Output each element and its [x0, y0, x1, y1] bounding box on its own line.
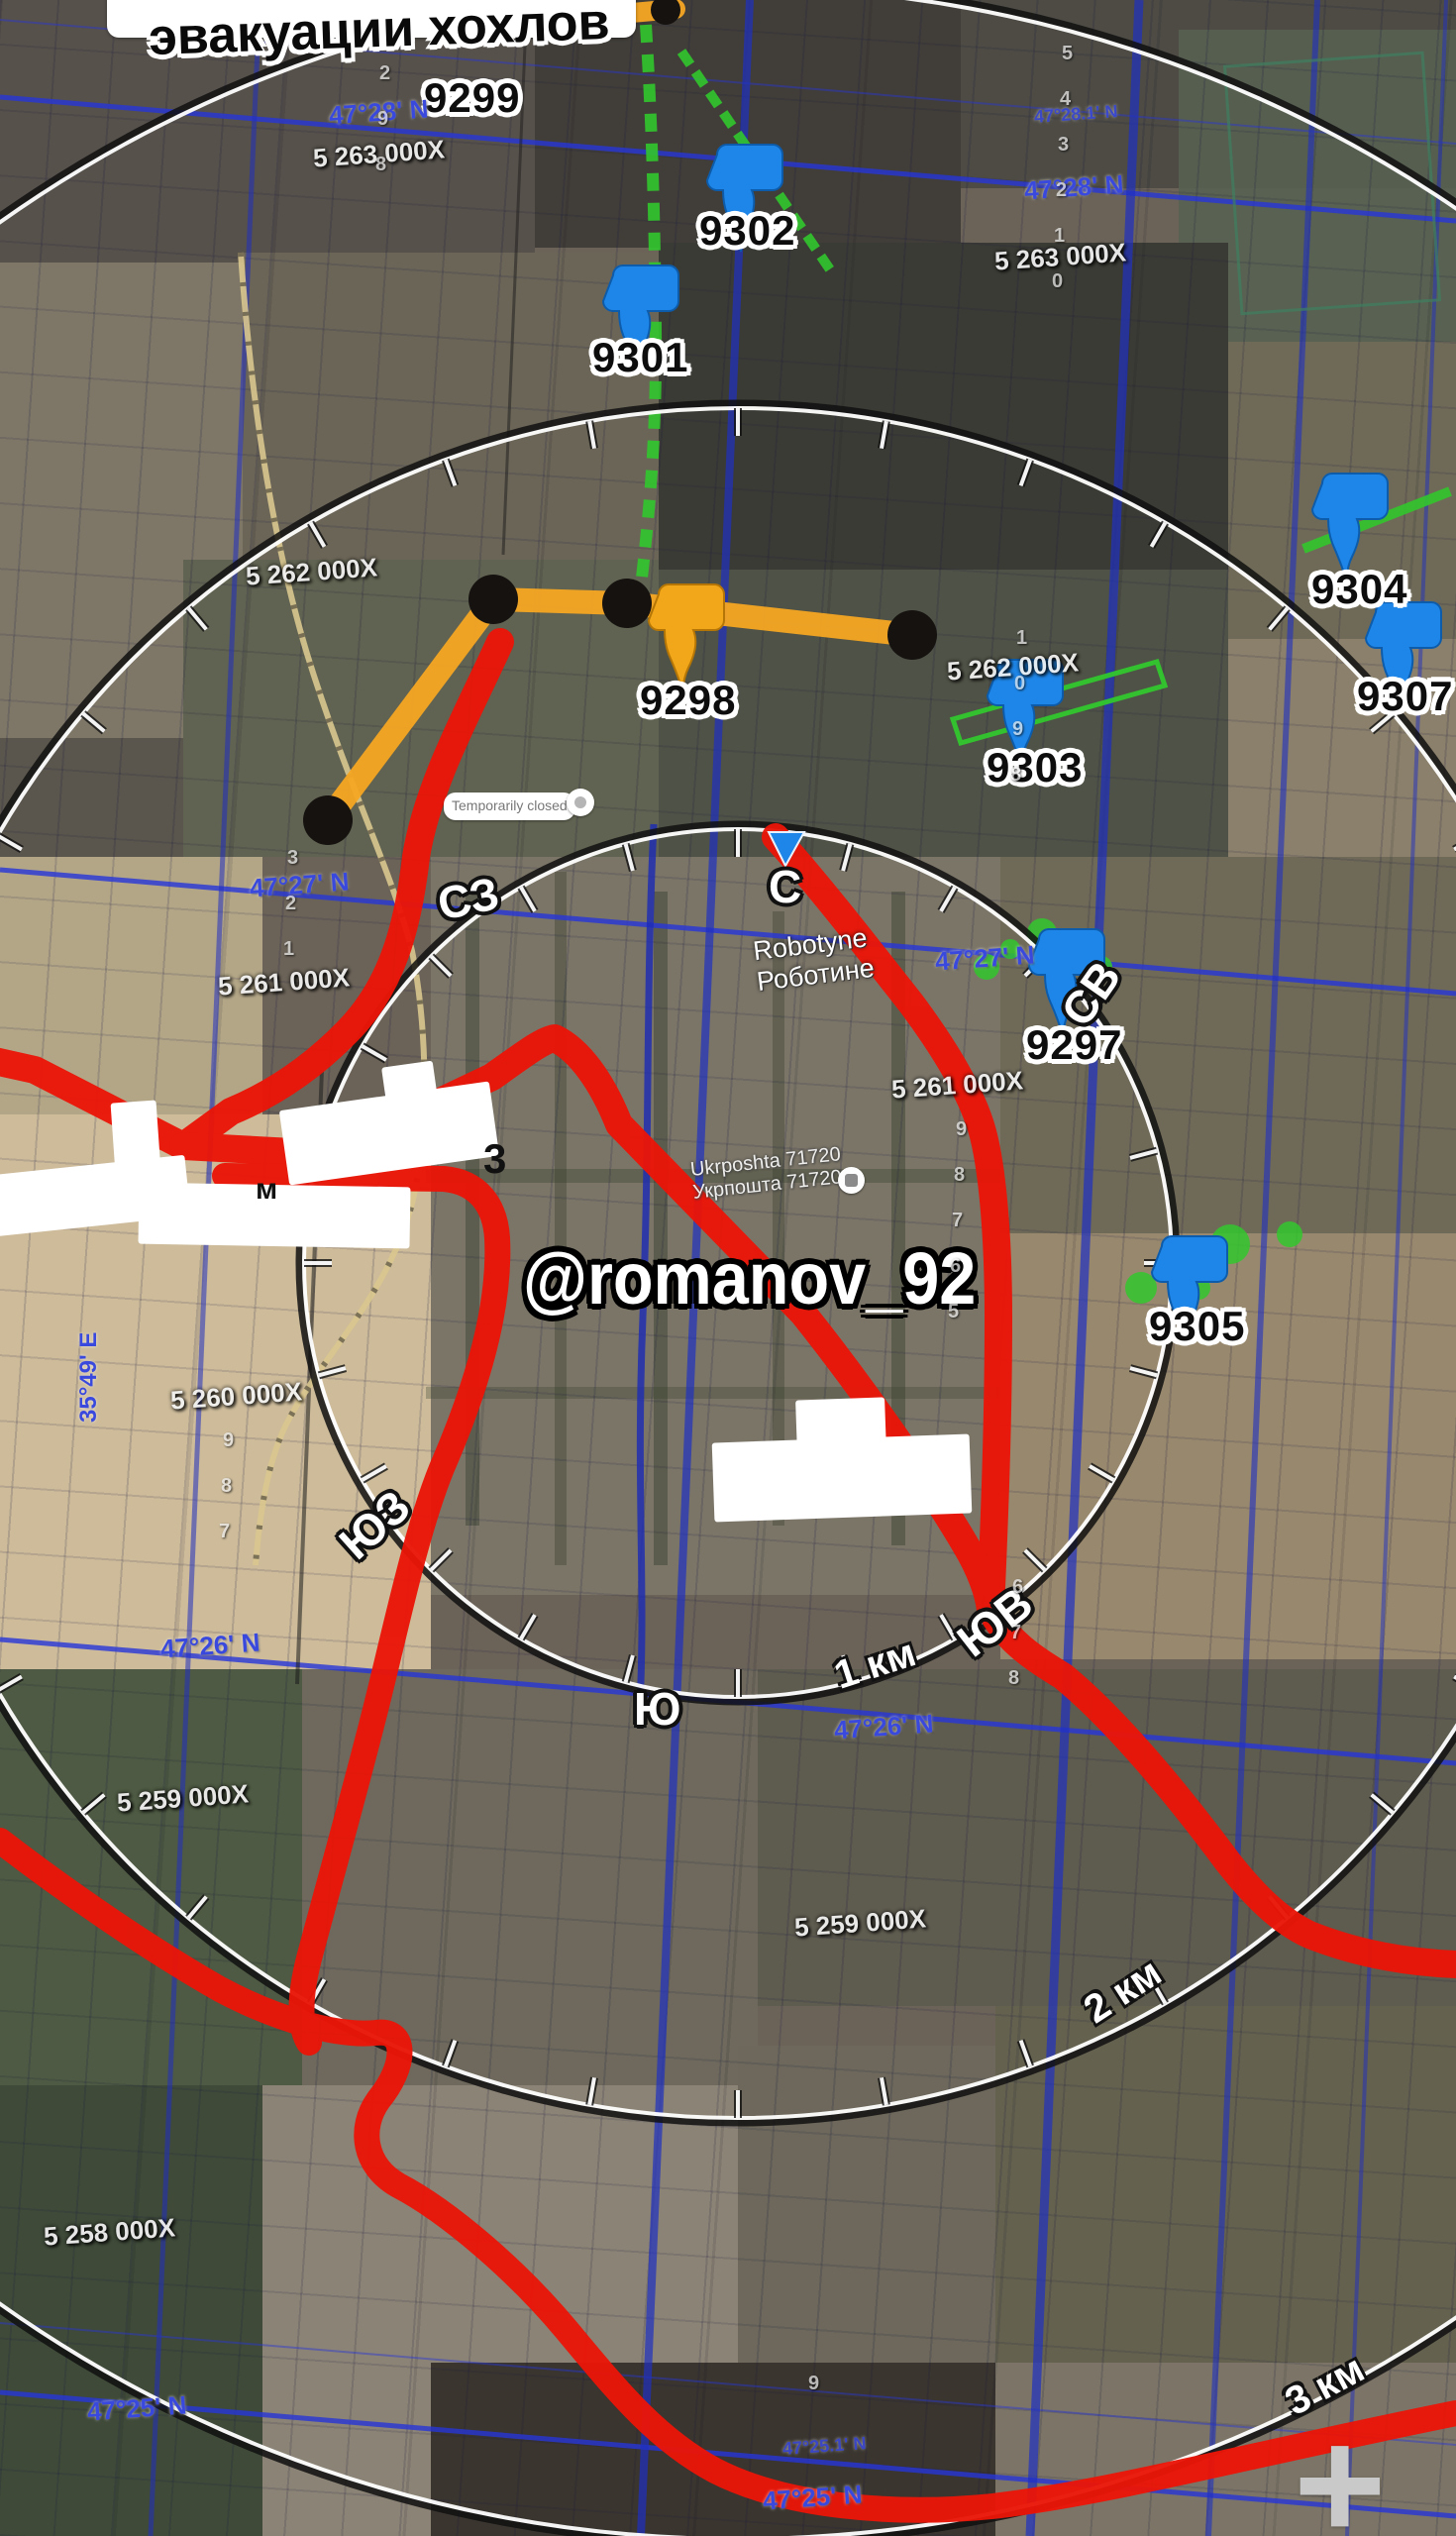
grid-tick-digit: 0 — [1052, 271, 1063, 291]
grid-tick-digit: 7 — [952, 1211, 963, 1230]
place-name: Robotyne Роботине — [752, 922, 877, 998]
grid-tick-digit: 8 — [221, 1476, 232, 1496]
grid-latitude-label: 47°28.1' N — [1033, 102, 1118, 126]
grid-latitude-label: 47°26' N — [159, 1630, 260, 1662]
grid-tick-digit: 1 — [1054, 226, 1065, 246]
grid-tick-digit: 2 — [379, 63, 390, 83]
grid-latitude-label: 47°28' N — [1023, 171, 1124, 204]
grid-tick-digit: 3 — [287, 848, 298, 868]
waypoint-label-9298: 9298 — [640, 680, 736, 721]
search-bar-text: 1 км — [141, 0, 202, 4]
censored-label-block — [795, 1397, 886, 1453]
zoom-in-button[interactable]: + — [1294, 2405, 1386, 2536]
grid-tick-digit: 1 — [283, 939, 294, 959]
grid-longitude-label: 35°49' E — [77, 1332, 101, 1423]
grid-tick-digit: 9 — [1012, 719, 1023, 739]
grid-tick-digit: 5 — [948, 1302, 959, 1321]
grid-latitude-label: 47°25' N — [762, 2482, 863, 2514]
grid-tick-digit: 2 — [1056, 180, 1067, 200]
grid-latitude-label: 47°25.1' N — [781, 2434, 867, 2458]
grid-x-label: 5 259 000X — [116, 1780, 250, 1815]
ring-distance-label: 2 км — [1078, 1953, 1168, 2031]
waypoint-label-9299: 9299 — [424, 77, 520, 119]
censored-label-block — [111, 1100, 161, 1174]
grid-tick-digit: 9 — [808, 2374, 819, 2393]
waypoint-label-9301: 9301 — [592, 337, 688, 378]
grid-x-label: 5 261 000X — [890, 1067, 1024, 1102]
grid-tick-digit: 8 — [1008, 1668, 1019, 1688]
grid-tick-digit: 0 — [1014, 674, 1025, 693]
evacuation-note: эвакуации хохлов — [148, 0, 610, 67]
grid-tick-digit: 3 — [1058, 135, 1069, 155]
grid-x-label: 5 260 000X — [169, 1378, 303, 1413]
grid-tick-digit: 9 — [377, 109, 388, 129]
compass-direction-ЮЗ: ЮЗ — [331, 1482, 417, 1566]
grid-tick-digit: 8 — [375, 155, 386, 174]
grid-tick-digit: 6 — [1012, 1577, 1023, 1597]
compass-direction-Ю: Ю — [634, 1686, 680, 1732]
grid-latitude-label: 47°27' N — [934, 942, 1035, 975]
grid-latitude-label: 47°26' N — [833, 1711, 934, 1743]
waypoint-label-9307: 9307 — [1357, 676, 1453, 717]
poi-icon[interactable] — [838, 1167, 865, 1194]
grid-x-label: 5 262 000X — [946, 649, 1080, 684]
map-viewport[interactable]: 1 км эвакуации хохлов Robotyne Роботине … — [0, 0, 1456, 2536]
grid-tick-digit: 2 — [285, 894, 296, 913]
grid-tick-digit: 9 — [223, 1430, 234, 1450]
censored-label-block — [381, 1061, 439, 1113]
compass-direction-ЮВ: ЮВ — [949, 1579, 1040, 1664]
grid-tick-digit: 1 — [1016, 628, 1027, 648]
grid-tick-digit: 9 — [956, 1119, 967, 1139]
grid-tick-digit: 8 — [1010, 765, 1021, 785]
watermark: @romanov_92 — [523, 1236, 976, 1321]
waypoint-label-9303: 9303 — [987, 747, 1083, 789]
grid-latitude-label: 47°25' N — [86, 2392, 187, 2425]
grid-x-label: 5 262 000X — [245, 554, 378, 588]
grid-tick-digit: 7 — [1010, 1623, 1021, 1642]
map-labels: 1 км эвакуации хохлов Robotyne Роботине … — [0, 0, 1456, 2536]
waypoint-label-9302: 9302 — [699, 210, 795, 252]
compass-direction-С: С — [769, 864, 801, 909]
waypoint-label-9297: 9297 — [1026, 1024, 1122, 1066]
ring-distance-label: 1 км — [830, 1633, 920, 1696]
grid-tick-digit: 5 — [1062, 44, 1073, 63]
poi-ukrposhta[interactable]: Ukrposhta 71720 Укрпошта 71720 — [689, 1143, 844, 1205]
grid-tick-digit: 6 — [950, 1256, 961, 1276]
waypoint-label-9304: 9304 — [1311, 569, 1407, 610]
grid-x-label: 5 261 000X — [217, 964, 351, 999]
censored-letter: м — [256, 1173, 277, 1207]
grid-tick-digit: 8 — [954, 1165, 965, 1185]
poi-status-badge: Temporarily closed — [444, 792, 575, 820]
grid-x-label: 5 259 000X — [793, 1905, 927, 1940]
grid-tick-digit: 7 — [219, 1522, 230, 1541]
censored-letter: 3 — [483, 1135, 506, 1183]
waypoint-label-9305: 9305 — [1149, 1306, 1245, 1347]
grid-tick-digit: 4 — [1060, 89, 1071, 109]
grid-x-label: 5 258 000X — [43, 2214, 176, 2249]
compass-direction-СЗ: СЗ — [434, 870, 503, 927]
grid-latitude-label: 47°27' N — [249, 869, 350, 901]
poi-status-icon — [567, 789, 594, 816]
